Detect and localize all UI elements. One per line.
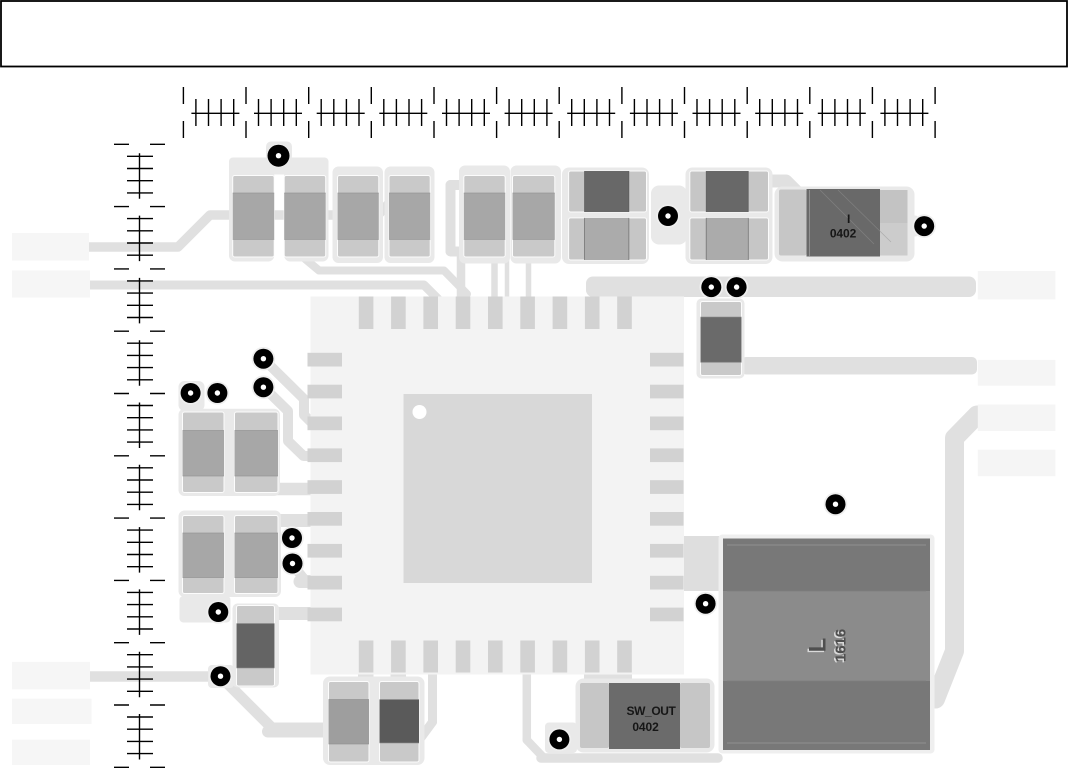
- svg-text:I: I: [847, 212, 850, 226]
- svg-text:1616: 1616: [832, 629, 849, 662]
- svg-text:0402: 0402: [830, 226, 857, 240]
- svg-text:SW_OUT: SW_OUT: [627, 704, 677, 718]
- svg-text:L: L: [805, 638, 832, 653]
- svg-text:0402: 0402: [632, 720, 659, 734]
